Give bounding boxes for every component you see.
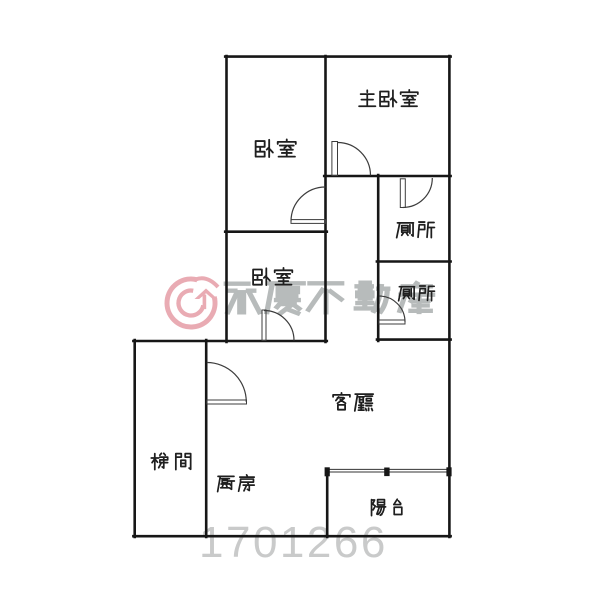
- svg-text:1701266: 1701266: [199, 518, 388, 567]
